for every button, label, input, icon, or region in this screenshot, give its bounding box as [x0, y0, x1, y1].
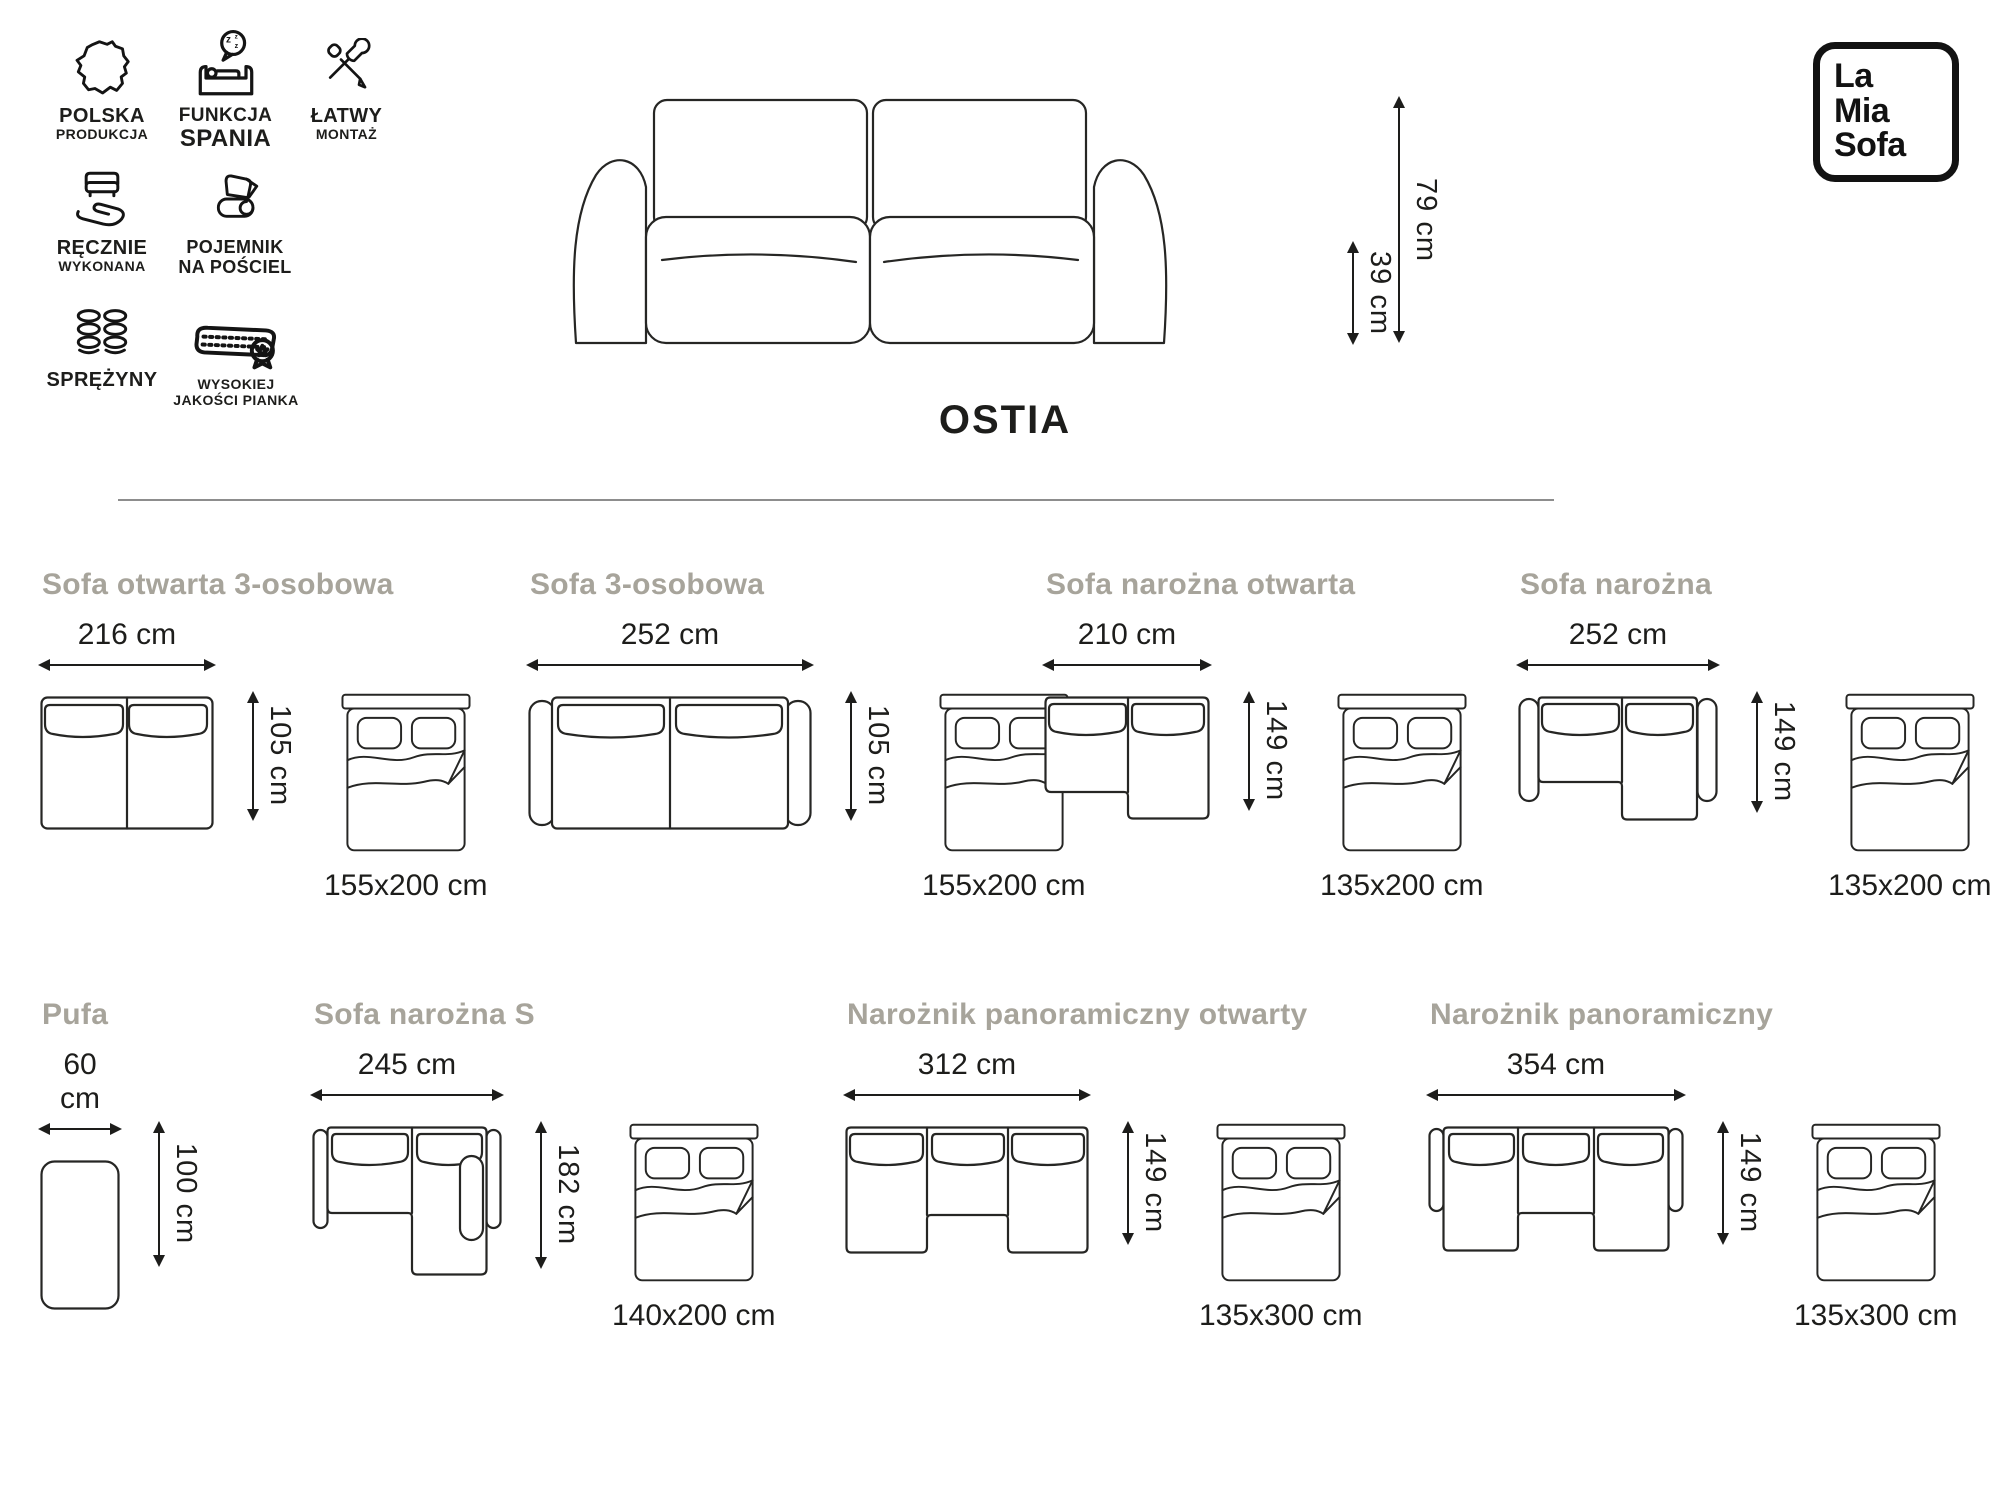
- bed-icon: [1337, 693, 1467, 853]
- feature-label: FUNKCJA SPANIA: [179, 105, 273, 153]
- bedding-icon: [203, 168, 267, 230]
- depth-dimension-group: 182 cm: [540, 1123, 582, 1267]
- pufa-top-view: [40, 1160, 120, 1310]
- width-dimension: 245 cm: [312, 1048, 502, 1082]
- back-height-value: 79 cm: [1411, 178, 1440, 262]
- feature-polska-produkcja: POLSKA PRODUKCJA: [40, 38, 164, 143]
- product-spec-sheet: POLSKA PRODUKCJA z z z FUNKCJA SPANIA: [0, 0, 2000, 1500]
- width-dimension: 252 cm: [528, 618, 812, 652]
- width-dimension: 252 cm: [1518, 618, 1718, 652]
- logo-line: Sofa: [1834, 128, 1938, 163]
- depth-arrow: [1127, 1123, 1129, 1243]
- bed-size: 135x300 cm: [1199, 1299, 1362, 1333]
- sofa-top-view: [1518, 696, 1718, 821]
- svg-text:z: z: [234, 42, 238, 50]
- variant-card-sofa-3-osobowa: Sofa 3-osobowa 252 cm 105 cm: [528, 568, 1085, 903]
- width-arrow: [845, 1094, 1089, 1096]
- seat-height-dimension: 39 cm: [1352, 243, 1394, 343]
- depth-dimension-group: 149 cm: [1248, 693, 1290, 809]
- variant-card-pufa: Pufa 60 cm 100 cm: [40, 998, 200, 1310]
- back-height-arrow: [1398, 98, 1400, 341]
- feature-label: SPRĘŻYNY: [46, 369, 157, 391]
- sofa-top-view: [312, 1126, 502, 1276]
- width-dimension: 210 cm: [1044, 618, 1210, 652]
- depth-arrow: [252, 693, 254, 819]
- feature-pojemnik-na-posciel: POJEMNIK NA POŚCIEL: [164, 168, 306, 277]
- variant-title: Sofa narożna S: [314, 998, 775, 1032]
- width-arrow: [1044, 664, 1210, 666]
- feature-label: RĘCZNIE WYKONANA: [57, 237, 148, 275]
- springs-icon: [69, 304, 135, 362]
- variant-card-sofa-narozna: Sofa narożna 252 cm 149 cm: [1518, 568, 1991, 903]
- width-arrow: [1428, 1094, 1684, 1096]
- seat-height-arrow: [1352, 243, 1354, 343]
- sofa-top-view: [40, 696, 214, 830]
- depth-arrow: [540, 1123, 542, 1267]
- bed-size: 140x200 cm: [612, 1299, 775, 1333]
- feature-label: POLSKA PRODUKCJA: [56, 105, 148, 143]
- variant-title: Sofa otwarta 3-osobowa: [42, 568, 487, 602]
- features-panel: POLSKA PRODUKCJA z z z FUNKCJA SPANIA: [36, 28, 466, 478]
- variant-card-sofa-narozna-otwarta: Sofa narożna otwarta 210 cm 149 cm 135x2…: [1044, 568, 1483, 903]
- feature-latwy-montaz: ŁATWY MONTAŻ: [294, 38, 399, 143]
- depth-dimension: 149 cm: [1769, 701, 1798, 802]
- sofa-top-view: [845, 1126, 1089, 1254]
- depth-dimension-group: 105 cm: [850, 693, 892, 819]
- depth-dimension: 105 cm: [265, 705, 294, 806]
- section-divider: [118, 499, 1554, 501]
- feature-label: WYSOKIEJ JAKOŚCI PIANKA: [173, 377, 298, 408]
- bed-icon: [1216, 1123, 1346, 1283]
- poland-map-icon: [70, 38, 134, 98]
- feature-sprezyny: SPRĘŻYNY: [40, 304, 164, 391]
- width-arrow: [1518, 664, 1718, 666]
- bed-icon: [1811, 1123, 1941, 1283]
- variant-title: Narożnik panoramiczny: [1430, 998, 1957, 1032]
- width-dimension: 354 cm: [1428, 1048, 1684, 1082]
- logo-line: Mia: [1834, 94, 1938, 129]
- width-arrow: [40, 1128, 120, 1130]
- bed-icon: [629, 1123, 759, 1283]
- bed-size: 155x200 cm: [324, 869, 487, 903]
- depth-dimension-group: 100 cm: [158, 1123, 200, 1265]
- bed-icon: [1845, 693, 1975, 853]
- depth-dimension: 105 cm: [863, 705, 892, 806]
- svg-text:z: z: [226, 34, 231, 45]
- width-dimension: 312 cm: [845, 1048, 1089, 1082]
- feature-label: POJEMNIK NA POŚCIEL: [178, 237, 291, 277]
- product-title: OSTIA: [840, 398, 1170, 443]
- foam-icon: [188, 312, 284, 370]
- feature-recznie-wykonana: RĘCZNIE WYKONANA: [40, 168, 164, 275]
- feature-funkcja-spania: z z z FUNKCJA SPANIA: [168, 28, 283, 153]
- variant-card-naroznik-panoramiczny-otwarty: Narożnik panoramiczny otwarty 312 cm 149…: [845, 998, 1362, 1333]
- depth-arrow: [1722, 1123, 1724, 1243]
- feature-label: ŁATWY MONTAŻ: [311, 105, 383, 143]
- variant-title: Sofa narożna otwarta: [1046, 568, 1483, 602]
- feature-wysokiej-jakosci-pianka: WYSOKIEJ JAKOŚCI PIANKA: [160, 312, 312, 408]
- sleep-function-icon: z z z: [190, 28, 262, 98]
- hand-sofa-icon: [69, 168, 135, 230]
- sofa-top-view: [1428, 1126, 1684, 1252]
- width-dimension: 216 cm: [40, 618, 214, 652]
- back-height-dimension: 79 cm: [1398, 98, 1440, 341]
- hero-sofa-front-view: [560, 55, 1180, 355]
- tools-icon: [317, 38, 377, 98]
- seat-height-value: 39 cm: [1365, 251, 1394, 335]
- sofa-top-view: [528, 696, 812, 830]
- bed-size: 135x200 cm: [1828, 869, 1991, 903]
- depth-arrow: [1248, 693, 1250, 809]
- sofa-top-view: [1044, 696, 1210, 820]
- brand-logo: La Mia Sofa: [1813, 42, 1959, 182]
- variant-title: Narożnik panoramiczny otwarty: [847, 998, 1362, 1032]
- depth-dimension-group: 149 cm: [1722, 1123, 1764, 1243]
- depth-dimension-group: 149 cm: [1756, 693, 1798, 811]
- depth-dimension-group: 105 cm: [252, 693, 294, 819]
- depth-dimension-group: 149 cm: [1127, 1123, 1169, 1243]
- depth-dimension: 182 cm: [553, 1144, 582, 1245]
- variant-title: Pufa: [42, 998, 200, 1032]
- svg-text:z: z: [234, 34, 237, 41]
- bed-size: 135x300 cm: [1794, 1299, 1957, 1333]
- variant-title: Sofa narożna: [1520, 568, 1991, 602]
- variant-title: Sofa 3-osobowa: [530, 568, 1085, 602]
- bed-size: 135x200 cm: [1320, 869, 1483, 903]
- depth-arrow: [158, 1123, 160, 1265]
- width-arrow: [528, 664, 812, 666]
- depth-dimension: 149 cm: [1140, 1132, 1169, 1233]
- width-dimension: 60 cm: [40, 1048, 120, 1116]
- variant-card-sofa-narozna-s: Sofa narożna S 245 cm 182 cm: [312, 998, 775, 1333]
- bed-icon: [341, 693, 471, 853]
- depth-dimension: 149 cm: [1735, 1132, 1764, 1233]
- depth-dimension: 149 cm: [1261, 700, 1290, 801]
- width-arrow: [40, 664, 214, 666]
- depth-arrow: [1756, 693, 1758, 811]
- width-arrow: [312, 1094, 502, 1096]
- variant-card-naroznik-panoramiczny: Narożnik panoramiczny 354 cm 149 c: [1428, 998, 1957, 1333]
- depth-dimension: 100 cm: [171, 1143, 200, 1244]
- logo-line: La: [1834, 59, 1938, 94]
- depth-arrow: [850, 693, 852, 819]
- variant-card-sofa-otwarta-3-osobowa: Sofa otwarta 3-osobowa 216 cm 105 cm 155…: [40, 568, 487, 903]
